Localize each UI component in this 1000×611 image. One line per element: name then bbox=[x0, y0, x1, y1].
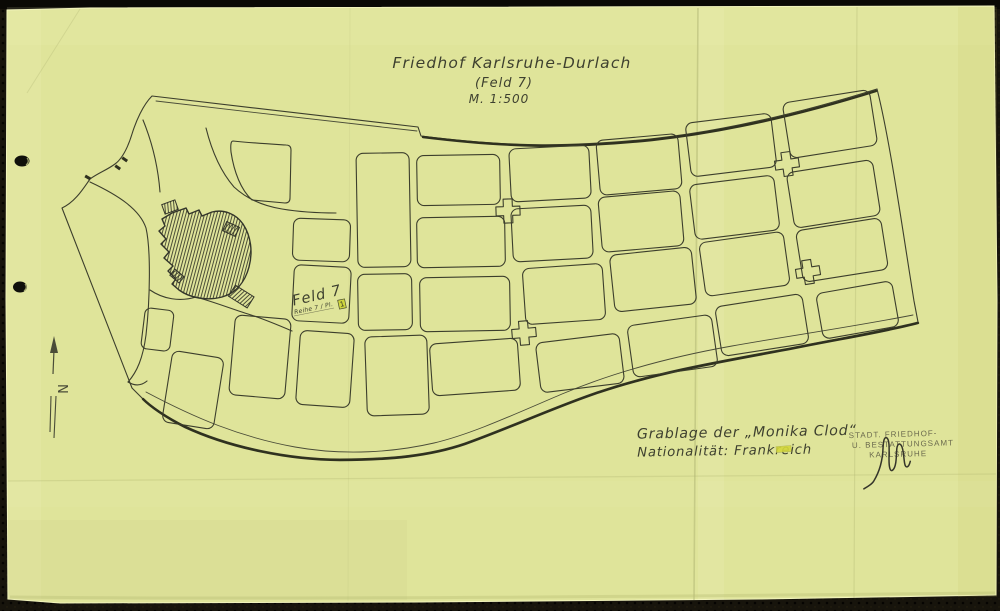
fold-shading bbox=[958, 7, 997, 597]
map-subtitle: (Feld 7) bbox=[475, 76, 533, 91]
field-plot-highlight: 1 bbox=[338, 299, 347, 309]
fold-shading bbox=[7, 9, 41, 599]
fold-shading bbox=[7, 520, 407, 600]
north-label: N bbox=[54, 384, 69, 394]
scanned-document: N Friedhof Karlsruhe-Durlach (Feld 7) M.… bbox=[0, 0, 1000, 611]
fold-shading bbox=[7, 7, 995, 45]
fold-shading bbox=[8, 481, 996, 507]
map-title: Friedhof Karlsruhe-Durlach bbox=[392, 54, 631, 72]
chapel-outline bbox=[159, 208, 251, 299]
fold-shading bbox=[698, 8, 724, 600]
highlight-mark bbox=[776, 446, 791, 453]
punch-hole bbox=[15, 156, 30, 167]
cemetery-map-scan: N Friedhof Karlsruhe-Durlach (Feld 7) M.… bbox=[0, 0, 1000, 611]
stamp-line-3: KARLSRUHE bbox=[869, 449, 927, 460]
map-scale: M. 1:500 bbox=[469, 92, 530, 106]
